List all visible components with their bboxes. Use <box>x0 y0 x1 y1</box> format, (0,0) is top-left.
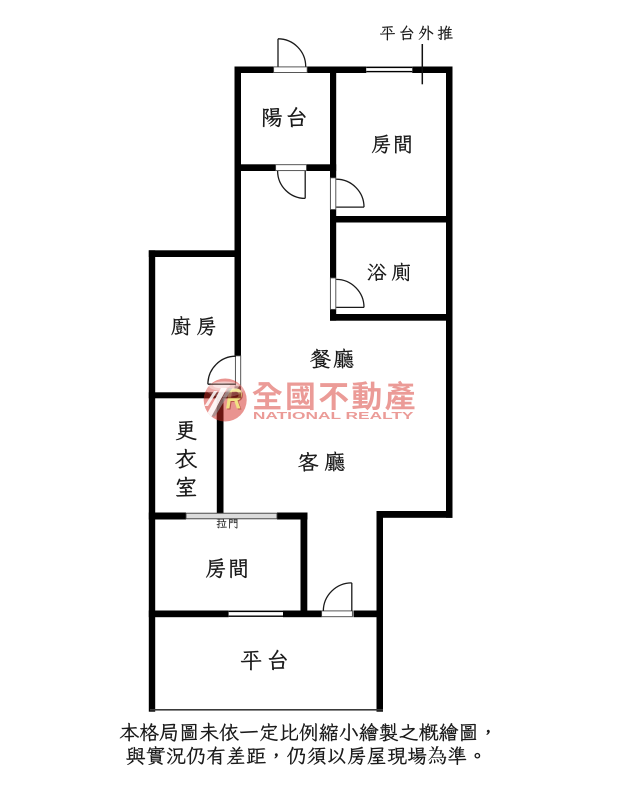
svg-text:NATIONAL REALTY: NATIONAL REALTY <box>253 411 414 422</box>
